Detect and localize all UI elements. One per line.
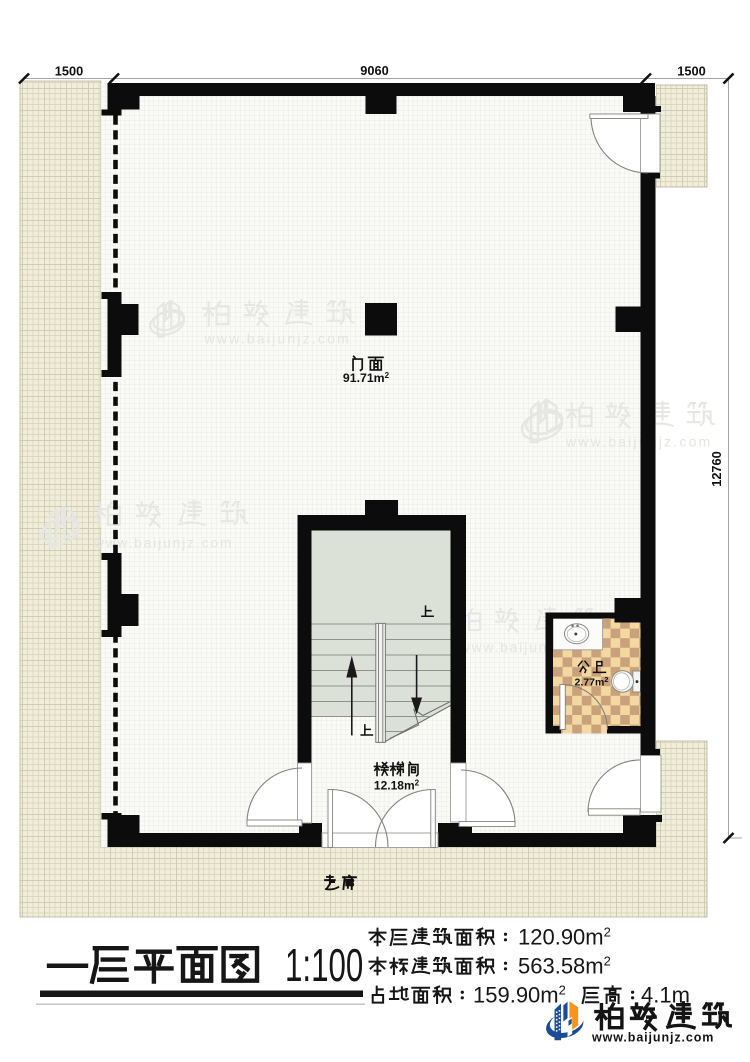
svg-text:12.18m2: 12.18m2 bbox=[374, 779, 420, 793]
svg-text:12760: 12760 bbox=[709, 451, 724, 487]
svg-text:563.58m2: 563.58m2 bbox=[518, 954, 611, 979]
svg-text:1500: 1500 bbox=[677, 64, 705, 79]
svg-text:159.90m2: 159.90m2 bbox=[473, 983, 566, 1008]
svg-text:9060: 9060 bbox=[360, 63, 388, 78]
svg-text:2.77m2: 2.77m2 bbox=[575, 675, 609, 689]
svg-text:1:100: 1:100 bbox=[285, 940, 363, 991]
svg-text:91.71m2: 91.71m2 bbox=[343, 371, 390, 385]
svg-text:1500: 1500 bbox=[55, 64, 83, 79]
svg-text:120.90m2: 120.90m2 bbox=[518, 925, 611, 950]
svg-text:www.baijunjz.com: www.baijunjz.com bbox=[204, 331, 351, 347]
svg-text:www.baijunjz.com: www.baijunjz.com bbox=[565, 434, 712, 450]
svg-text:www.baijunjz.com: www.baijunjz.com bbox=[591, 1031, 714, 1045]
